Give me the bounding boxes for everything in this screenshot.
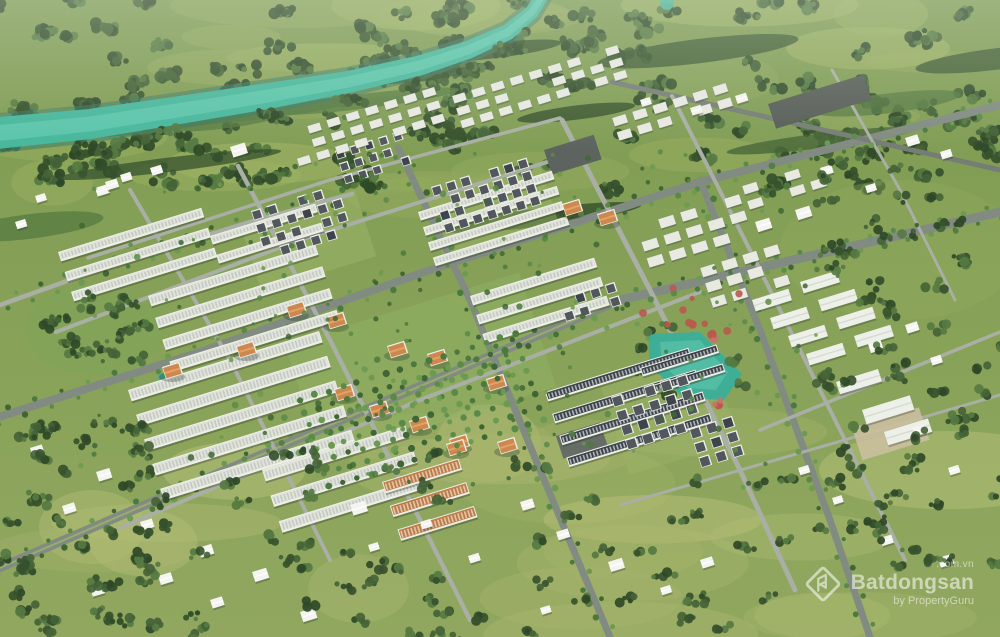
batdongsan-logo-icon [804, 565, 842, 603]
aerial-render [0, 0, 1000, 637]
watermark-text: .com.vn Batdongsan by PropertyGuru [851, 560, 974, 607]
watermark-byline: by PropertyGuru [893, 596, 974, 607]
atmosphere-haze [0, 0, 1000, 150]
watermark-brand: Batdongsan [851, 572, 974, 593]
aerial-render-stage: .com.vn Batdongsan by PropertyGuru [0, 0, 1000, 637]
watermark-domain-suffix: .com.vn [936, 560, 974, 570]
watermark: .com.vn Batdongsan by PropertyGuru [804, 560, 974, 607]
